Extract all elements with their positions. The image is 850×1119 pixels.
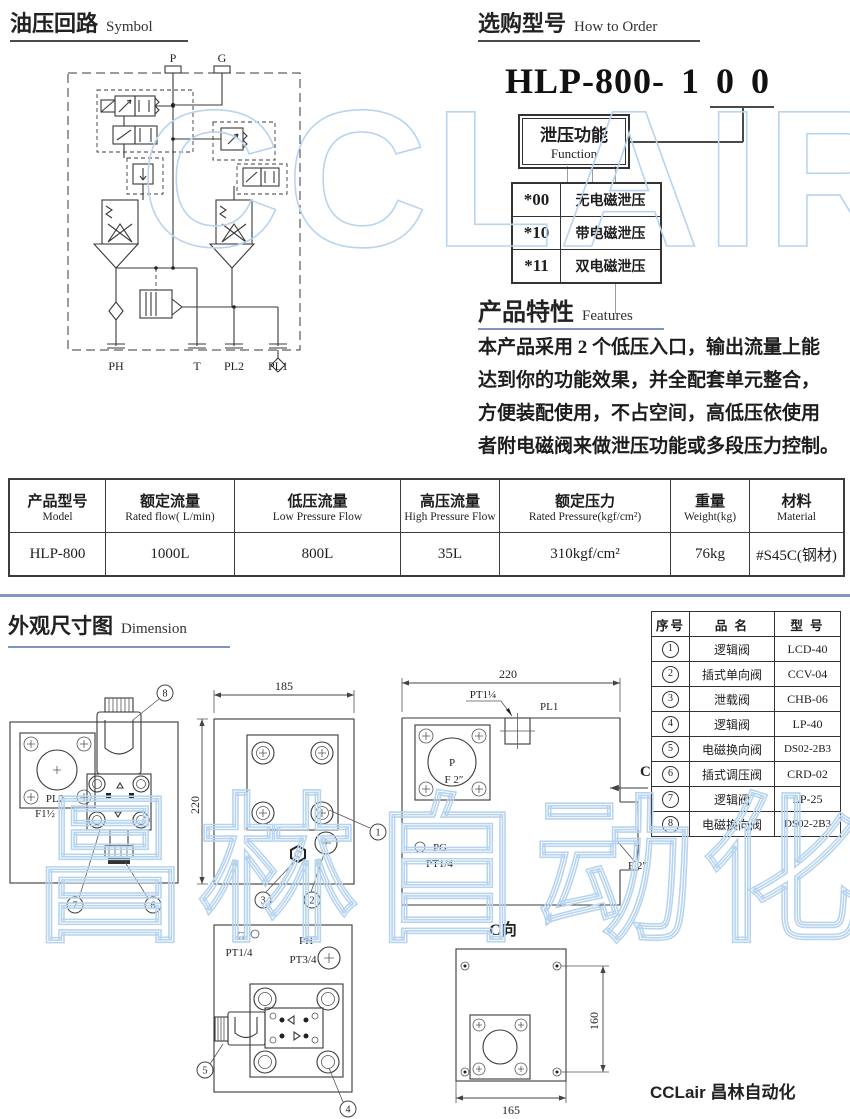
model-digit-2: 0 <box>716 60 735 102</box>
dimension-title-rule <box>8 646 230 648</box>
part-name: 逻辑阀 <box>689 636 774 661</box>
callout-6: 6 <box>125 862 161 913</box>
callout-4-num: 4 <box>346 1105 351 1116</box>
pg-label: PG <box>433 842 447 854</box>
spec-header-en: Low Pressure Flow <box>273 511 362 523</box>
part-name: 泄载阀 <box>689 686 774 711</box>
model-digit-3: 0 <box>751 60 770 102</box>
part-name: 插式调压阀 <box>689 761 774 786</box>
pl1-port <box>500 713 535 749</box>
ph-thread-label: PT3/4 <box>290 954 317 966</box>
logic-valve-left-symbol <box>94 200 138 302</box>
callout-5-num: 5 <box>203 1066 208 1077</box>
footer-brand: CCLair 昌林自动化 <box>650 1078 795 1103</box>
callout-7-num: 7 <box>73 901 78 912</box>
part-no: 1 <box>652 636 689 661</box>
part-no: 4 <box>652 711 689 736</box>
ph-plug <box>318 947 340 969</box>
spec-value-model: HLP-800 <box>10 533 105 575</box>
drawing-c-view: C向 160 165 <box>433 893 673 1119</box>
c-view-label: C <box>640 764 651 780</box>
part-no-badge: 1 <box>662 641 679 658</box>
circuit-boundary <box>68 73 300 350</box>
pilot-relief-valve-symbol <box>127 158 163 200</box>
pl2-size-label: F1½ <box>35 808 55 820</box>
spec-header-zh: 额定压力 <box>555 490 615 511</box>
port-p-symbol <box>165 66 181 268</box>
part-no: 2 <box>652 661 689 686</box>
pt1-14-label: PT1¼ <box>470 689 497 701</box>
order-title-en: How to Order <box>574 19 657 35</box>
callout-8-num: 8 <box>163 689 168 700</box>
port-g-symbol <box>171 66 230 107</box>
drawing-left-view: PL2 F1½ 8 7 <box>5 678 200 918</box>
callout-1-num: 1 <box>376 828 381 839</box>
connector-horizontal <box>630 141 743 143</box>
features-text: 本产品采用 2 个低压入口，输出流量上能 达到你的功能效果，并全配套单元整合， … <box>478 331 850 463</box>
function-options-table: *00 无电磁泄压 *10 带电磁泄压 *11 双电磁泄压 <box>511 182 662 284</box>
bolt-pattern <box>247 735 338 830</box>
callout-2-num: 2 <box>310 896 315 907</box>
dim-165: 165 <box>456 1081 566 1117</box>
dim-160-label: 160 <box>587 1012 601 1030</box>
model-prefix: HLP-800- <box>505 61 665 101</box>
part-name: 插式单向阀 <box>689 661 774 686</box>
round-plug <box>315 832 337 854</box>
solenoid-valve-right-symbol <box>237 164 287 194</box>
drawing-bottom-middle-view: G PT1/4 PH PT3/4 5 <box>193 908 441 1119</box>
part-no-badge: 8 <box>662 816 679 833</box>
option-label: 带电磁泄压 <box>561 216 660 249</box>
callout-3-num: 3 <box>261 896 266 907</box>
spec-header-en: Rated Pressure(kgf/cm²) <box>529 511 641 523</box>
features-line: 达到你的功能效果，并全配套单元整合， <box>478 364 850 397</box>
function-label-en: Function <box>531 146 617 162</box>
check-valve-symbol <box>109 302 123 346</box>
option-code: *11 <box>513 249 561 282</box>
dim-160: 160 <box>561 966 609 1072</box>
part-no-badge: 3 <box>662 691 679 708</box>
dim-220-label: 220 <box>188 796 202 814</box>
spec-table: 产品型号 Model 额定流量 Rated flow( L/min) 低压流量 … <box>8 478 845 577</box>
pl1-label: PL1 <box>540 701 558 713</box>
option-label: 无电磁泄压 <box>561 184 660 216</box>
port-pl1-label: PL1 <box>268 359 288 373</box>
spec-header: 额定压力 Rated Pressure(kgf/cm²) <box>499 480 670 533</box>
part-model: CHB-06 <box>774 686 840 711</box>
callout-6-num: 6 <box>151 901 156 912</box>
function-label-zh: 泄压功能 <box>531 121 617 146</box>
hex-plug <box>291 846 305 862</box>
part-no-badge: 4 <box>662 716 679 733</box>
spec-header-zh: 材料 <box>781 490 811 511</box>
features-title-rule <box>478 328 664 330</box>
part-name: 电磁换向阀 <box>689 736 774 761</box>
p-port-label: P <box>449 757 455 769</box>
spec-value-low-pressure-flow: 800L <box>234 533 400 575</box>
inner-flange <box>470 1015 530 1079</box>
t-size-label: F 2″ <box>628 860 647 872</box>
datasheet-page: 油压回路Symbol P G <box>0 0 850 1119</box>
logic-valve-right-symbol <box>210 186 254 307</box>
part-model: LP-40 <box>774 711 840 736</box>
part-no: 7 <box>652 786 689 811</box>
drawing-right-view: 220 PT1¼ PL1 P F 2″ PG PT1/4 C <box>388 652 656 914</box>
callout-8: 8 <box>133 685 173 720</box>
spec-header-zh: 额定流量 <box>140 490 200 511</box>
part-model: CRD-02 <box>774 761 840 786</box>
part-name: 逻辑阀 <box>689 711 774 736</box>
section-divider <box>0 594 850 597</box>
model-code: HLP-800-100 <box>505 60 770 102</box>
dim-220: 220 <box>402 667 620 712</box>
callout-5: 5 <box>197 1044 223 1078</box>
spec-header-en: Weight(kg) <box>684 511 736 523</box>
part-no-badge: 2 <box>662 666 679 683</box>
port-pl2-label: PL2 <box>224 359 244 373</box>
part-no: 8 <box>652 811 689 836</box>
spec-header-en: High Pressure Flow <box>404 511 495 523</box>
drawing-middle-view: 185 220 1 3 <box>195 658 405 910</box>
parts-header-name: 品 名 <box>689 612 774 636</box>
g-thread-label: PT1/4 <box>226 947 253 959</box>
features-line: 者附电磁阀来做泄压功能或多段压力控制。 <box>478 430 850 463</box>
spec-header-zh: 高压流量 <box>420 490 480 511</box>
spec-header-zh: 低压流量 <box>287 490 347 511</box>
part-model: LP-25 <box>774 786 840 811</box>
spec-value-high-pressure-flow: 35L <box>400 533 499 575</box>
port-g-label: G <box>218 51 227 65</box>
dim-165-label: 165 <box>502 1103 520 1117</box>
part-no: 6 <box>652 761 689 786</box>
option-code: *10 <box>513 216 561 249</box>
order-title-rule <box>478 40 700 42</box>
part-no-badge: 5 <box>662 741 679 758</box>
model-digit-1: 1 <box>681 60 700 102</box>
corner-screws <box>461 962 561 1076</box>
pg-thread-label: PT1/4 <box>426 858 453 870</box>
t-port-label: T <box>634 843 641 855</box>
bolt-pattern <box>250 984 343 1077</box>
option-label: 双电磁泄压 <box>561 249 660 282</box>
spec-header: 重量 Weight(kg) <box>670 480 749 533</box>
part-model: LCD-40 <box>774 636 840 661</box>
spec-header: 额定流量 Rated flow( L/min) <box>105 480 234 533</box>
dim-220-label: 220 <box>499 667 517 681</box>
ph-port-label: PH <box>299 935 313 947</box>
port-t-label: T <box>193 359 201 373</box>
spec-header: 材料 Material <box>749 480 843 533</box>
hydraulic-circuit-diagram: P G <box>45 30 375 390</box>
function-box: 泄压功能 Function <box>518 114 630 169</box>
g-port-label: G <box>237 930 245 942</box>
features-line: 本产品采用 2 个低压入口，输出流量上能 <box>478 331 850 364</box>
part-no-badge: 7 <box>662 791 679 808</box>
dimension-title-en: Dimension <box>121 621 187 637</box>
spec-header: 低压流量 Low Pressure Flow <box>234 480 400 533</box>
callout-2: 2 <box>304 854 324 908</box>
spec-header-zh: 重量 <box>695 490 725 511</box>
dim-185-label: 185 <box>275 679 293 693</box>
part-name: 逻辑阀 <box>689 786 774 811</box>
pg-port <box>415 842 425 852</box>
features-section-title: 产品特性Features <box>478 292 633 327</box>
order-title-zh: 选购型号 <box>478 11 566 36</box>
order-section-title: 选购型号How to Order <box>478 6 657 38</box>
parts-header-model: 型 号 <box>774 612 840 636</box>
solenoid-directional-valve-symbol <box>97 90 193 158</box>
part-name: 电磁换向阀 <box>689 811 774 836</box>
pl2-port-label: PL2 <box>46 793 64 805</box>
parts-header-no: 序号 <box>652 612 689 636</box>
spec-header-en: Material <box>777 511 816 523</box>
valve-assembly <box>87 698 151 864</box>
g-port-icon <box>251 930 259 938</box>
c-view-title: C向 <box>489 920 517 939</box>
p-size-label: F 2″ <box>445 774 464 786</box>
spec-header-en: Rated flow( L/min) <box>125 511 214 523</box>
port-ph-label: PH <box>108 359 124 373</box>
callout-7: 7 <box>67 830 100 913</box>
spec-value-weight: 76kg <box>670 533 749 575</box>
spec-header-zh: 产品型号 <box>27 490 87 511</box>
part-model: DS02-2B3 <box>774 811 840 836</box>
spec-header: 高压流量 High Pressure Flow <box>400 480 499 533</box>
dim-185: 185 <box>214 679 354 713</box>
spec-header: 产品型号 Model <box>10 480 105 533</box>
part-no-badge: 6 <box>662 766 679 783</box>
port-p-label: P <box>170 51 177 65</box>
spec-value-rated-flow: 1000L <box>105 533 234 575</box>
spec-value-material: #S45C(钢材) <box>749 533 843 575</box>
spec-header-en: Model <box>42 511 72 523</box>
spec-value-rated-pressure: 310kgf/cm² <box>499 533 670 575</box>
part-no: 5 <box>652 736 689 761</box>
c-view-arrow: C <box>610 764 651 788</box>
part-no: 3 <box>652 686 689 711</box>
connector-vertical <box>742 106 744 142</box>
option-code: *00 <box>513 184 561 216</box>
function-box-inner: 泄压功能 Function <box>522 118 626 165</box>
features-line: 方便装配使用，不占空间，高低压依使用 <box>478 397 850 430</box>
parts-table: 序号 品 名 型 号 1 逻辑阀 LCD-40 2 插式单向阀 CCV-04 3… <box>651 611 841 837</box>
features-title-zh: 产品特性 <box>478 299 574 326</box>
piston-symbol <box>140 268 182 318</box>
relief-valve-right-symbol <box>171 122 275 160</box>
dimension-section-title: 外观尺寸图Dimension <box>8 610 187 640</box>
part-model: DS02-2B3 <box>774 736 840 761</box>
dimension-title-zh: 外观尺寸图 <box>8 615 113 638</box>
solenoid-valve <box>215 1008 323 1048</box>
part-model: CCV-04 <box>774 661 840 686</box>
features-title-en: Features <box>582 308 633 324</box>
